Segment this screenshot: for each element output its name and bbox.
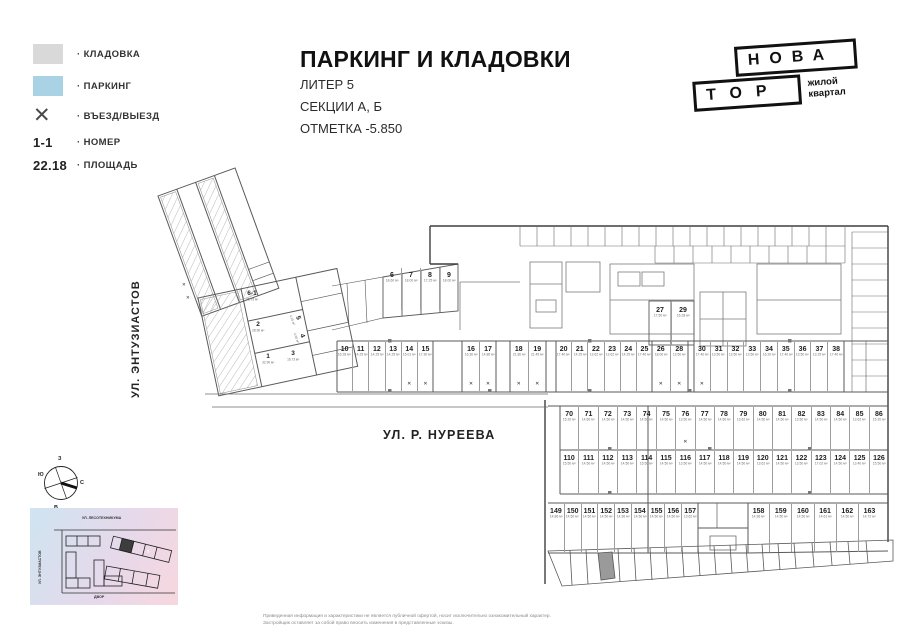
stall-area: 14.50 м² (718, 462, 731, 466)
stall-area: 14.50 м² (582, 462, 595, 466)
stall-area: 15.50 м² (873, 462, 886, 466)
stall-area: 17.40 м² (830, 353, 843, 357)
parking-stall: 154 14.50 м² (632, 504, 649, 552)
stall-area: 14.50 м² (660, 418, 673, 422)
stall-area: 14.50 м² (667, 515, 680, 519)
entry-exit-mark: ✕ (517, 382, 521, 391)
compass-drawing (38, 456, 86, 514)
parking-stall: 25 17.40 м² (637, 342, 652, 391)
parking-row-30-38: 30 17.40 м² ✕ 31 13.50 м² 32 13.50 м² 33… (694, 342, 844, 391)
parking-stall: 10 16.28 м² (337, 342, 353, 391)
entry-exit-mark: ✕ (700, 382, 704, 391)
parking-stall: 150 14.50 м² (565, 504, 582, 552)
parking-stall: 119 14.50 м² (734, 451, 753, 493)
parking-stall: 78 14.50 м² (715, 407, 734, 449)
stall-area: 14.50 м² (718, 418, 731, 422)
parking-stall: 80 14.50 м² (754, 407, 773, 449)
stall-area: 21.80 м² (512, 353, 525, 357)
stall-area: 14.50 м² (814, 418, 827, 422)
parking-stall: 36 13.50 м² (795, 342, 812, 391)
stall-area: 16.28 м² (338, 353, 351, 357)
parking-stall: 77 14.50 м² (696, 407, 715, 449)
stall-area: 15.50 м² (640, 462, 653, 466)
parking-stall: 124 14.50 м² (831, 451, 850, 493)
parking-stall: 30 17.40 м² ✕ (694, 342, 711, 391)
stall-area: 14.50 м² (737, 462, 750, 466)
compass-west: З (58, 456, 61, 462)
parking-row-27-29: 27 17.50 м² 29 16.28 м² (649, 303, 694, 345)
title-sections: СЕКЦИИ А, Б (300, 98, 571, 117)
entry-exit-mark: ✕ (677, 382, 681, 391)
parking-stall: 113 14.50 м² (618, 451, 637, 493)
minimap-highlighted-building: 5 (147, 549, 149, 554)
stall-area: 14.50 м² (602, 462, 615, 466)
title-block: ПАРКИНГ И КЛАДОВКИ ЛИТЕР 5 СЕКЦИИ А, Б О… (300, 46, 571, 139)
parking-stall: 82 13.50 м² (792, 407, 811, 449)
title-elevation: ОТМЕТКА -5.850 (300, 120, 571, 139)
parking-stall: 14 15.01 м² ✕ (402, 342, 418, 391)
stall-area: 14.50 м² (776, 418, 789, 422)
parking-stall: 24 14.25 м² (621, 342, 637, 391)
street-label-entuziastov: УЛ. ЭНТУЗИАСТОВ (130, 268, 142, 398)
parking-stall: 114 15.50 м² (637, 451, 656, 493)
parking-stall: 160 14.50 м² (792, 504, 814, 552)
stall-area: 13.25 м² (813, 353, 826, 357)
parking-row-149-157: 149 14.86 м² 150 14.50 м² 151 14.50 м² 1… (548, 504, 698, 552)
parking-swatch-icon (33, 76, 71, 96)
stall-area: 13.50 м² (679, 462, 692, 466)
stall-area: 21.45 м² (531, 353, 544, 357)
parking-stall: 159 14.50 м² (770, 504, 792, 552)
parking-row-10-15: 10 16.28 м² 11 14.25 м² 12 14.25 м² 13 1… (337, 342, 433, 391)
stall-area: 17.40 м² (696, 353, 709, 357)
stall-area: 13.50 м² (673, 353, 686, 357)
legend-area-example: 22.18 (33, 158, 67, 173)
legend-storage-label: · КЛАДОВКА (77, 49, 140, 60)
parking-stall: 85 13.62 м² (850, 407, 869, 449)
room-2: 2 28.90 м² (240, 322, 276, 338)
stall-area: 14.50 м² (566, 515, 579, 519)
parking-stall: 76 13.50 м² ✕ (676, 407, 695, 449)
legend-number-example: 1-1 (33, 135, 53, 150)
minimap-street-top: УЛ. ЛЕСОТЕХНИКУМА (82, 516, 121, 520)
stall-area: 14.25 м² (622, 353, 635, 357)
stall-area: 13.50 м² (712, 353, 725, 357)
parking-stall: 7 18.00 м² (402, 268, 421, 310)
stall-area: 17.30 м² (419, 353, 432, 357)
parking-stall: 83 14.50 м² (812, 407, 831, 449)
parking-stall: 29 16.28 м² (672, 303, 694, 345)
parking-stall: 126 15.50 м² (870, 451, 888, 493)
parking-stall: 33 13.50 м² (744, 342, 761, 391)
stall-area: 15.20 м² (873, 418, 886, 422)
room-6-1: 6-1 45.75 м² (234, 291, 270, 307)
stall-area: 14.50 м² (756, 418, 769, 422)
stall-area: 13.50 м² (746, 353, 759, 357)
parking-stall: 28 13.50 м² ✕ (671, 342, 689, 391)
location-minimap: УЛ. ЛЕСОТЕХНИКУМА УЛ. ЭНТУЗИАСТОВ ДВОР 5 (30, 508, 178, 605)
stall-area: 14.50 м² (698, 418, 711, 422)
parking-stall: 74 14.50 м² (637, 407, 656, 449)
parking-stall: 161 14.61 м² (815, 504, 837, 552)
stall-area: 17.02 м² (814, 462, 827, 466)
stall-area: 14.50 м² (583, 515, 596, 519)
parking-stall: 15 17.30 м² ✕ (418, 342, 433, 391)
stall-area: 14.50 м² (841, 515, 854, 519)
entry-exit-mark: ✕ (659, 382, 663, 391)
stall-area: 18.60 м² (386, 279, 399, 283)
parking-stall: 121 14.50 м² (773, 451, 792, 493)
parking-stall: 37 13.25 м² (811, 342, 828, 391)
entry-exit-mark: ✕ (407, 382, 411, 391)
minimap-street-left: УЛ. ЭНТУЗИАСТОВ (38, 550, 42, 584)
logo-nova-text: НОВА (747, 46, 834, 70)
parking-stall: 81 14.50 м² (773, 407, 792, 449)
legend-item-area: 22.18 · ПЛОЩАДЬ (33, 158, 160, 173)
stall-area: 17.40 м² (779, 353, 792, 357)
stall-area: 14.86 м² (550, 515, 563, 519)
parking-stall: 19 21.45 м² ✕ (529, 342, 547, 391)
parking-stall: 21 14.25 м² (572, 342, 588, 391)
stall-area: 13.40 м² (853, 462, 866, 466)
stall-area: 14.50 м² (640, 418, 653, 422)
parking-stall: 120 13.62 м² (754, 451, 773, 493)
stall-area: 13.62 м² (737, 418, 750, 422)
parking-stall: 17 14.86 м² ✕ (480, 342, 496, 391)
parking-stall: 153 14.36 м² (615, 504, 632, 552)
legend-number-label: · НОМЕР (77, 137, 120, 148)
stall-area: 14.50 м² (774, 515, 787, 519)
parking-stall: 70 15.20 м² (560, 407, 579, 449)
stall-area: 14.25 м² (387, 353, 400, 357)
parking-stall: 26 18.00 м² ✕ (652, 342, 671, 391)
parking-row-6-9: 6 18.60 м² 7 18.00 м² 8 17.25 м² 9 18.00… (383, 268, 458, 310)
legend-entry-exit-label: · ВЪЕЗД/ВЫЕЗД (77, 111, 160, 122)
parking-stall: 73 14.50 м² (618, 407, 637, 449)
minimap-yard-label: ДВОР (94, 595, 104, 599)
stall-area: 14.61 м² (819, 515, 832, 519)
parking-stall: 123 17.02 м² (812, 451, 831, 493)
parking-stall: 72 14.50 м² (599, 407, 618, 449)
parking-stall: 22 13.62 м² (588, 342, 604, 391)
parking-stall: 13 14.25 м² (386, 342, 402, 391)
stall-area: 15.50 м² (563, 462, 576, 466)
parking-stall: 31 13.50 м² (711, 342, 728, 391)
parking-stall: 34 16.20 м² (761, 342, 778, 391)
stall-area: 17.50 м² (654, 314, 667, 318)
parking-stall: 155 14.50 м² (649, 504, 666, 552)
legend-item-number: 1-1 · НОМЕР (33, 135, 160, 150)
stall-area: 13.50 м² (795, 462, 808, 466)
parking-stall: 16 16.30 м² ✕ (463, 342, 480, 391)
compass-south: Ю (38, 472, 44, 478)
stall-area: 14.25 м² (354, 353, 367, 357)
parking-stall: 112 14.50 м² (599, 451, 618, 493)
logo-tagline: жилой квартал (807, 76, 846, 100)
parking-stall: 125 13.40 м² (850, 451, 869, 493)
stall-area: 13.62 м² (684, 515, 697, 519)
parking-stall: 27 17.50 м² (649, 303, 672, 345)
parking-stall: 20 17.40 м² (556, 342, 572, 391)
stall-area: 17.40 м² (638, 353, 651, 357)
stall-area: 14.50 м² (582, 418, 595, 422)
parking-stall: 12 14.25 м² (369, 342, 385, 391)
stall-area: 17.40 м² (557, 353, 570, 357)
parking-stall: 18 21.80 м² ✕ (510, 342, 529, 391)
parking-stall: 79 13.62 м² (734, 407, 753, 449)
stall-area: 14.50 м² (650, 515, 663, 519)
parking-stall: 110 15.50 м² (560, 451, 579, 493)
stall-area: 13.62 м² (590, 353, 603, 357)
storage-swatch-icon (33, 44, 71, 64)
parking-stall: 162 14.50 м² (837, 504, 859, 552)
stall-area: 18.00 м² (654, 353, 667, 357)
parking-stall: 9 18.00 м² (440, 268, 458, 310)
parking-stall: 117 14.50 м² (696, 451, 715, 493)
parking-row-158-163: 158 14.36 м² 159 14.50 м² 160 14.50 м² 1… (748, 504, 880, 552)
stall-area: 14.50 м² (621, 418, 634, 422)
legend-item-storage: · КЛАДОВКА (33, 44, 160, 64)
parking-stall: 23 13.62 м² (605, 342, 621, 391)
parking-stall: 151 14.50 м² (582, 504, 599, 552)
stall-area: 14.50 м² (602, 418, 615, 422)
parking-row-26-28: 26 18.00 м² ✕ 28 13.50 м² ✕ (652, 342, 688, 391)
stall-area: 13.50 м² (729, 353, 742, 357)
parking-stall: 116 13.50 м² (676, 451, 695, 493)
stall-area: 14.50 м² (797, 515, 810, 519)
entry-exit-mark: ✕ (683, 440, 687, 449)
entry-exit-mark: ✕ (535, 382, 539, 391)
stall-area: 16.30 м² (465, 353, 478, 357)
entry-exit-icon: ✕ (33, 106, 71, 126)
legend-item-entry-exit: ✕ · ВЪЕЗД/ВЫЕЗД (33, 106, 160, 126)
parking-stall: 32 13.50 м² (728, 342, 745, 391)
logo-tor-text: ТОР (706, 82, 782, 105)
stall-area: 14.50 м² (776, 462, 789, 466)
parking-stall: 75 14.50 м² (657, 407, 676, 449)
parking-row-110-126: 110 15.50 м² 111 14.50 м² 112 14.50 м² 1… (560, 451, 888, 493)
parking-stall: 86 15.20 м² (870, 407, 888, 449)
stall-area: 14.50 м² (834, 418, 847, 422)
stall-area: 14.86 м² (482, 353, 495, 357)
legend-item-parking: · ПАРКИНГ (33, 76, 160, 96)
compass-rose: З С В Ю (38, 456, 86, 514)
parking-stall: 111 14.50 м² (579, 451, 598, 493)
stall-area: 13.50 м² (679, 418, 692, 422)
stall-area: 13.62 м² (853, 418, 866, 422)
stall-area: 14.25 м² (371, 353, 384, 357)
stall-area: 14.50 м² (698, 462, 711, 466)
parking-stall: 8 17.25 м² (421, 268, 440, 310)
compass-north: С (80, 480, 84, 486)
title-liter: ЛИТЕР 5 (300, 76, 571, 95)
stall-area: 14.50 м² (834, 462, 847, 466)
stall-area: 14.50 м² (633, 515, 646, 519)
street-label-nureyeva: УЛ. Р. НУРЕЕВА (383, 428, 495, 442)
stall-area: 13.50 м² (796, 353, 809, 357)
stall-area: 14.36 м² (617, 515, 630, 519)
legend-parking-label: · ПАРКИНГ (77, 81, 131, 92)
parking-plan-page: · КЛАДОВКА · ПАРКИНГ ✕ · ВЪЕЗД/ВЫЕЗД 1-1… (0, 0, 900, 637)
parking-stall: 84 14.50 м² (831, 407, 850, 449)
entry-exit-mark: ✕ (469, 382, 473, 391)
stall-area: 13.50 м² (795, 418, 808, 422)
stall-area: 14.25 м² (573, 353, 586, 357)
stall-area: 16.20 м² (763, 353, 776, 357)
parking-stall: 11 14.25 м² (353, 342, 369, 391)
stall-area: 18.00 м² (405, 279, 418, 283)
entry-exit-mark: ✕ (186, 296, 190, 301)
parking-row-18-19: 18 21.80 м² ✕ 19 21.45 м² ✕ (510, 342, 546, 391)
minimap-drawing (30, 508, 178, 605)
room-3: 3 16.73 м² (279, 351, 307, 367)
stall-area: 15.20 м² (563, 418, 576, 422)
stall-area: 13.62 м² (756, 462, 769, 466)
stall-area: 14.50 м² (621, 462, 634, 466)
novator-logo: НОВА ТОР жилой квартал (690, 38, 864, 112)
stall-area: 18.00 м² (443, 279, 456, 283)
parking-stall: 118 14.50 м² (715, 451, 734, 493)
parking-row-16-17: 16 16.30 м² ✕ 17 14.86 м² ✕ (463, 342, 496, 391)
entry-exit-mark: ✕ (423, 382, 427, 391)
legend: · КЛАДОВКА · ПАРКИНГ ✕ · ВЪЕЗД/ВЫЕЗД 1-1… (33, 44, 160, 183)
parking-stall: 163 14.72 м² (859, 504, 880, 552)
stall-area: 16.28 м² (677, 314, 690, 318)
stall-area: 17.25 м² (424, 279, 437, 283)
parking-stall: 157 13.62 м² (682, 504, 698, 552)
page-title: ПАРКИНГ И КЛАДОВКИ (300, 46, 571, 73)
stall-area: 13.62 м² (606, 353, 619, 357)
stall-area: 15.01 м² (403, 353, 416, 357)
parking-stall: 71 14.50 м² (579, 407, 598, 449)
stall-area: 14.50 м² (660, 462, 673, 466)
stall-area: 14.50 м² (600, 515, 613, 519)
parking-row-20-25: 20 17.40 м² 21 14.25 м² 22 13.62 м² 23 1… (556, 342, 652, 391)
entry-exit-mark: ✕ (182, 283, 186, 288)
parking-row-70-86: 70 15.20 м² 71 14.50 м² 72 14.50 м² 73 1… (560, 407, 888, 449)
parking-stall: 149 14.86 м² (548, 504, 565, 552)
entry-exit-mark: ✕ (486, 382, 490, 391)
stall-area: 14.72 м² (863, 515, 876, 519)
parking-stall: 6 18.60 м² (383, 268, 402, 310)
parking-stall: 35 17.40 м² (778, 342, 795, 391)
legend-area-label: · ПЛОЩАДЬ (77, 160, 138, 171)
parking-stall: 158 14.36 м² (748, 504, 770, 552)
parking-stall: 156 14.50 м² (665, 504, 682, 552)
parking-stall: 38 17.40 м² (828, 342, 844, 391)
stall-area: 14.36 м² (752, 515, 765, 519)
disclaimer-text: Приведенная информация и характеристики … (263, 612, 683, 627)
parking-stall: 122 13.50 м² (792, 451, 811, 493)
parking-stall: 115 14.50 м² (657, 451, 676, 493)
parking-stall: 152 14.50 м² (598, 504, 615, 552)
